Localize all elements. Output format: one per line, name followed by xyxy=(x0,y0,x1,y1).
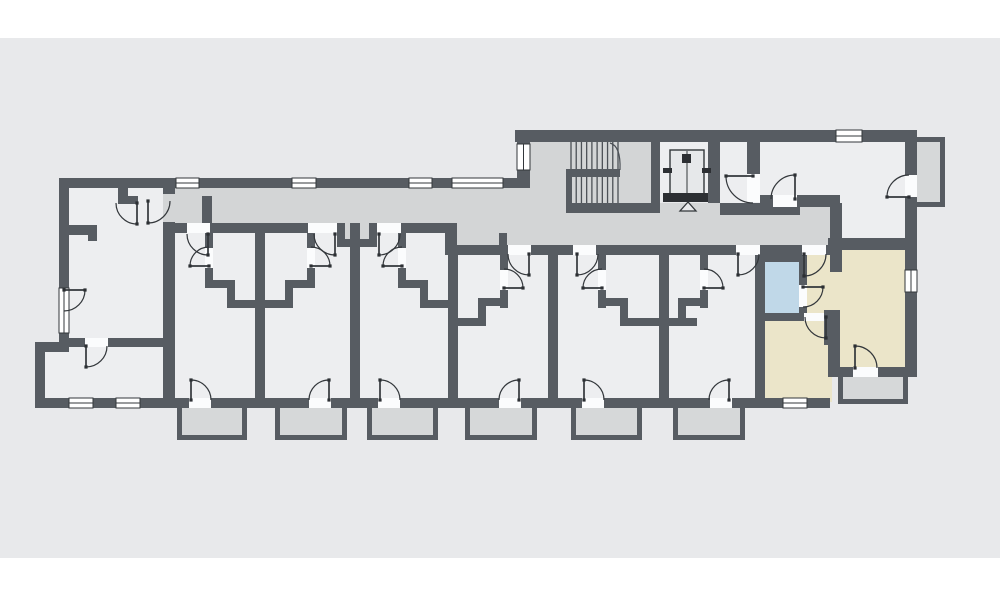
wall-segment xyxy=(755,255,765,398)
door-leaf-tip xyxy=(328,264,331,267)
door-threshold xyxy=(804,313,824,321)
balcony-wall xyxy=(571,435,642,440)
balcony-top-right xyxy=(917,137,945,207)
door-hinge xyxy=(801,285,804,288)
door-threshold xyxy=(187,223,210,233)
door-hinge xyxy=(333,232,336,235)
balcony-wall xyxy=(275,435,347,440)
wall-segment xyxy=(548,255,558,398)
floor-plan xyxy=(0,0,1000,600)
wall-segment xyxy=(620,318,659,326)
wall-segment xyxy=(669,318,697,326)
wall-segment xyxy=(905,292,917,377)
floor-plan-page xyxy=(0,0,1000,600)
door-threshold xyxy=(377,223,401,233)
wall-segment xyxy=(350,223,360,398)
door-hinge xyxy=(502,286,505,289)
wall-segment xyxy=(118,196,138,204)
door-leaf-tip xyxy=(802,274,805,277)
wall-segment xyxy=(651,142,660,209)
balcony-5 xyxy=(571,408,642,440)
door-hinge xyxy=(207,264,210,267)
corridor-mid xyxy=(453,188,527,245)
wall-segment xyxy=(227,300,257,308)
wall-segment xyxy=(659,255,669,398)
wall-segment xyxy=(255,223,265,398)
door-leaf-tip xyxy=(188,264,191,267)
door-threshold xyxy=(853,367,878,377)
window xyxy=(783,398,807,408)
door-hinge xyxy=(378,398,381,401)
window xyxy=(836,130,862,142)
wall-segment xyxy=(448,255,458,398)
window xyxy=(176,178,199,188)
wall-segment xyxy=(905,133,917,175)
door-threshold xyxy=(85,338,108,347)
wall-segment xyxy=(828,320,840,367)
door-hinge xyxy=(84,344,87,347)
door-leaf-tip xyxy=(83,288,86,291)
balcony-4 xyxy=(465,408,537,440)
door-hinge xyxy=(62,288,65,291)
wall-segment xyxy=(458,318,486,326)
balcony-3 xyxy=(367,408,438,440)
room-left-wing xyxy=(59,178,175,408)
wall-segment xyxy=(445,245,508,255)
window xyxy=(116,398,140,408)
elevator-rail xyxy=(663,168,672,173)
door-leaf-tip xyxy=(517,378,520,381)
wall-segment xyxy=(531,245,573,255)
wall-segment xyxy=(828,238,908,250)
door-hinge xyxy=(527,252,530,255)
door-hinge xyxy=(327,398,330,401)
door-hinge xyxy=(575,252,578,255)
wall-segment xyxy=(598,255,606,270)
unit-bedroom[interactable] xyxy=(755,318,832,402)
wall-segment xyxy=(700,255,708,270)
door-hinge xyxy=(400,264,403,267)
door-leaf-tip xyxy=(377,253,380,256)
door-leaf-tip xyxy=(575,273,578,276)
balcony-wall xyxy=(367,435,438,440)
wall-segment xyxy=(420,300,450,308)
door-leaf-tip xyxy=(381,264,384,267)
door-hinge xyxy=(907,195,910,198)
balcony-unit xyxy=(838,377,908,404)
door-hinge xyxy=(135,201,138,204)
balcony-wall xyxy=(177,435,247,440)
door-leaf-tip xyxy=(327,378,330,381)
wall-segment xyxy=(202,196,212,223)
door-threshold xyxy=(308,223,337,233)
wall-segment xyxy=(755,254,802,262)
wall-segment xyxy=(163,188,175,194)
balcony-wall xyxy=(940,137,945,207)
elevator-door xyxy=(663,193,708,202)
wall-segment xyxy=(331,398,378,408)
door-hinge xyxy=(824,315,827,318)
door-hinge xyxy=(751,174,754,177)
wall-segment xyxy=(163,223,187,233)
wall-segment xyxy=(604,398,710,408)
door-leaf-tip xyxy=(521,286,524,289)
wall-segment xyxy=(755,313,804,321)
door-hinge xyxy=(309,264,312,267)
door-leaf-tip xyxy=(84,365,87,368)
door-leaf-tip xyxy=(824,336,827,339)
door-leaf-tip xyxy=(581,286,584,289)
balcony-1 xyxy=(177,408,247,440)
balcony-wall xyxy=(917,202,945,207)
wall-segment xyxy=(88,225,97,241)
stairwell xyxy=(527,142,660,245)
balcony-wall xyxy=(838,399,908,404)
door-hinge xyxy=(377,232,380,235)
wall-segment xyxy=(69,338,85,347)
wall-segment xyxy=(35,398,175,408)
unit-living-room[interactable] xyxy=(832,242,907,375)
wall-segment xyxy=(760,245,802,255)
stair-rail xyxy=(566,169,572,203)
door-leaf-tip xyxy=(821,285,824,288)
wall-segment xyxy=(799,307,807,313)
balcony-2 xyxy=(275,408,347,440)
door-threshold xyxy=(747,174,760,202)
elevator xyxy=(663,150,711,211)
wall-segment xyxy=(830,203,842,272)
door-hinge xyxy=(702,286,705,289)
door-leaf-tip xyxy=(527,273,530,276)
door-hinge xyxy=(582,398,585,401)
door-leaf-tip xyxy=(885,195,888,198)
door-leaf-tip xyxy=(853,344,856,347)
wall-segment xyxy=(400,398,499,408)
door-hinge xyxy=(727,398,730,401)
wall-segment xyxy=(799,254,807,285)
wall-segment xyxy=(211,398,309,408)
wall-segment xyxy=(175,398,189,408)
unit-bathroom[interactable] xyxy=(759,256,805,316)
elevator-counterweight xyxy=(682,154,691,163)
door-hinge xyxy=(793,197,796,200)
wall-segment xyxy=(878,367,908,377)
window xyxy=(452,178,503,188)
door-hinge xyxy=(206,232,209,235)
wall-segment xyxy=(905,197,917,270)
door-leaf-tip xyxy=(333,253,336,256)
wall-segment xyxy=(108,338,165,347)
wall-segment xyxy=(596,245,736,255)
wall-segment xyxy=(566,203,660,213)
window xyxy=(69,398,93,408)
balcony-6 xyxy=(673,408,745,440)
wall-segment xyxy=(499,233,507,245)
wall-segment xyxy=(265,300,293,308)
door-hinge xyxy=(853,366,856,369)
door-leaf-tip xyxy=(736,273,739,276)
window xyxy=(905,270,917,292)
wall-segment xyxy=(521,398,582,408)
door-leaf-tip xyxy=(135,222,138,225)
door-hinge xyxy=(146,199,149,202)
door-leaf-tip xyxy=(582,378,585,381)
door-hinge xyxy=(517,398,520,401)
elevator-rail xyxy=(702,168,711,173)
door-leaf-tip xyxy=(378,378,381,381)
door-hinge xyxy=(600,286,603,289)
wall-segment xyxy=(163,222,175,398)
door-leaf-tip xyxy=(146,221,149,224)
balcony-wall xyxy=(465,435,537,440)
door-threshold xyxy=(905,175,917,197)
wall-segment xyxy=(500,255,508,270)
door-threshold xyxy=(773,195,797,207)
door-leaf-tip xyxy=(206,253,209,256)
door-hinge xyxy=(736,252,739,255)
door-leaf-tip xyxy=(724,174,727,177)
door-leaf-tip xyxy=(721,286,724,289)
stair-landing-bar xyxy=(566,169,620,177)
wall-segment xyxy=(731,398,830,408)
wall-segment xyxy=(828,367,853,377)
door-hinge xyxy=(189,398,192,401)
door-leaf-tip xyxy=(189,378,192,381)
wall-segment xyxy=(401,223,450,233)
door-leaf-tip xyxy=(727,378,730,381)
door-leaf-tip xyxy=(793,173,796,176)
balcony-wall xyxy=(673,435,745,440)
door-hinge xyxy=(802,252,805,255)
window xyxy=(517,144,530,170)
window xyxy=(292,178,316,188)
wall-segment xyxy=(747,142,760,174)
window xyxy=(409,178,432,188)
